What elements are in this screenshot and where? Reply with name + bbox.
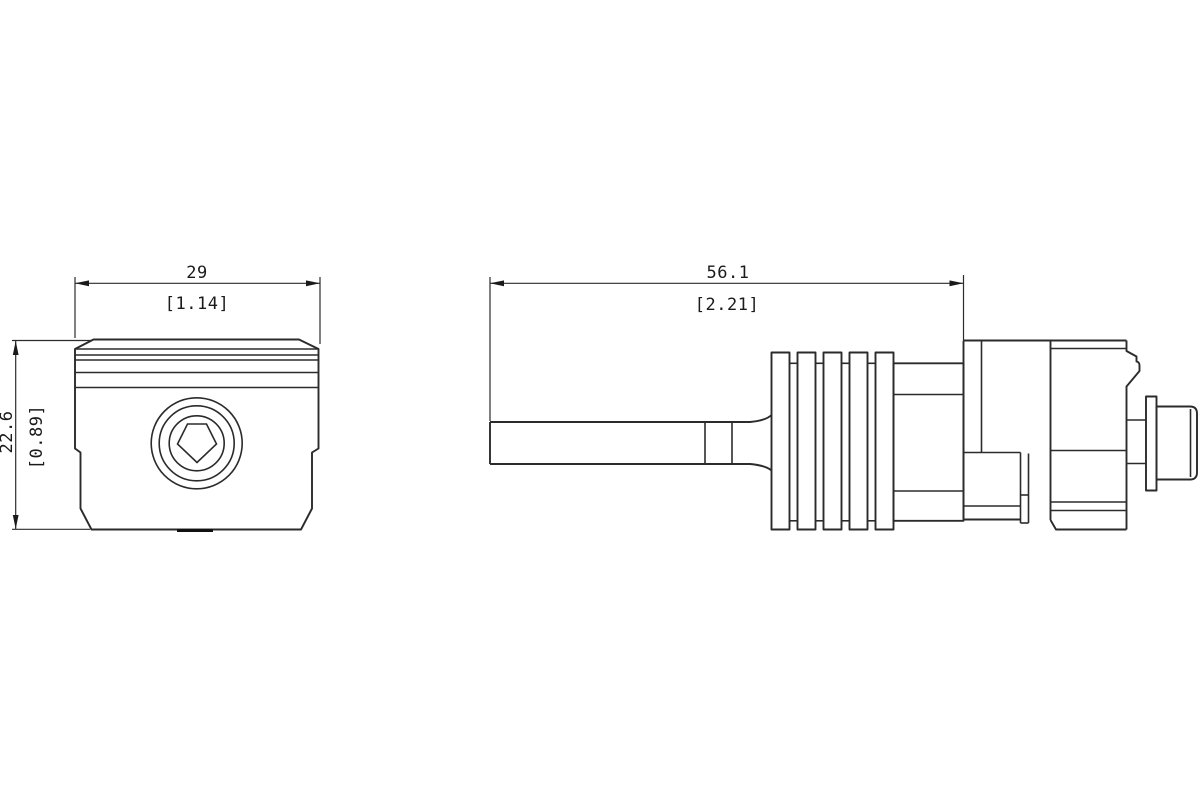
bellows-rib xyxy=(824,353,842,530)
dimension-arrow-bottom xyxy=(13,515,19,529)
boss-circle-outer xyxy=(151,398,242,489)
housing-right-edge xyxy=(1127,341,1140,530)
front-width-dim-secondary: [1.14] xyxy=(165,294,229,314)
plunger-bottom-edge xyxy=(490,464,772,471)
side-view: 56.1 [2.21] xyxy=(490,263,1197,530)
body-slot xyxy=(1021,453,1029,524)
front-width-dimension: 29 [1.14] xyxy=(75,263,320,344)
dimension-arrow-right xyxy=(306,280,320,286)
neck-collar xyxy=(894,363,964,521)
connector xyxy=(1127,397,1198,491)
plunger-bar xyxy=(490,415,772,471)
dimension-arrow-left xyxy=(75,280,89,286)
hex-socket xyxy=(178,424,217,463)
connector-flange xyxy=(1146,397,1157,491)
switch-body xyxy=(964,275,1140,530)
side-length-dim-secondary: [2.21] xyxy=(695,295,759,315)
front-body-outline xyxy=(75,340,319,530)
dimension-arrow-top xyxy=(13,341,19,355)
front-height-dim-secondary: [0.89] xyxy=(27,405,47,469)
front-height-dimension: 22.6 [0.89] xyxy=(0,341,91,530)
side-length-dimension: 56.1 [2.21] xyxy=(490,263,964,421)
drawing-stage: 29 [1.14] 22.6 [0.89] 56.1 [2.21] xyxy=(0,0,1200,800)
bellows xyxy=(772,353,894,530)
bellows-rib xyxy=(850,353,868,530)
front-height-dim-primary: 22.6 xyxy=(0,411,17,454)
neck-outline xyxy=(894,363,964,521)
dimension-arrow-right xyxy=(950,280,964,286)
bellows-rib xyxy=(772,353,790,530)
front-view: 29 [1.14] 22.6 [0.89] xyxy=(0,263,320,531)
front-width-dim-primary: 29 xyxy=(186,263,207,283)
side-length-dim-primary: 56.1 xyxy=(707,263,750,283)
dimension-arrow-left xyxy=(490,280,504,286)
dimension-drawing: 29 [1.14] 22.6 [0.89] 56.1 [2.21] xyxy=(0,0,1200,800)
plunger-top-edge xyxy=(490,415,772,422)
housing-bottom-edge xyxy=(1051,520,1127,530)
bellows-rib xyxy=(798,353,816,530)
boss-circle-middle xyxy=(159,406,234,481)
bellows-rib xyxy=(876,353,894,530)
